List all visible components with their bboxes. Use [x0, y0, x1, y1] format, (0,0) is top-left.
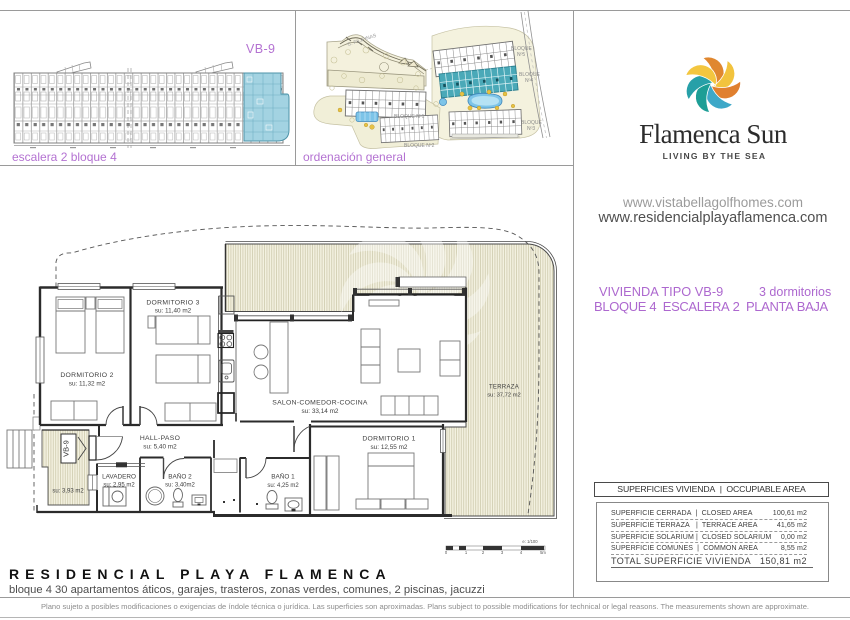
svg-text:su: 4,25 m2: su: 4,25 m2 [267, 483, 299, 489]
svg-text:3: 3 [501, 550, 504, 555]
svg-text:e: 1/100: e: 1/100 [522, 539, 538, 544]
svg-text:su: 37,72 m2: su: 37,72 m2 [487, 393, 521, 399]
svg-text:DORMITORIO 1: DORMITORIO 1 [362, 436, 415, 443]
svg-text:Nº5: Nº5 [517, 52, 525, 58]
svg-text:4: 4 [520, 550, 523, 555]
svg-text:1: 1 [465, 550, 468, 555]
svg-text:TERRAZA: TERRAZA [489, 385, 519, 391]
svg-text:su: 3,40m2: su: 3,40m2 [165, 483, 195, 489]
svg-text:SALON-COMEDOR-COCINA: SALON-COMEDOR-COCINA [272, 400, 368, 407]
svg-text:VB-9: VB-9 [62, 440, 71, 457]
svg-text:su: 11,40 m2: su: 11,40 m2 [155, 308, 192, 315]
svg-text:0: 0 [445, 550, 448, 555]
svg-text:HALL-PASO: HALL-PASO [140, 435, 180, 442]
svg-text:su: 3,93 m2: su: 3,93 m2 [52, 489, 84, 495]
svg-text:DORMITORIO 3: DORMITORIO 3 [146, 300, 199, 307]
svg-text:BAÑO 2: BAÑO 2 [168, 472, 192, 481]
svg-text:Nº4: Nº4 [525, 78, 533, 84]
svg-text:su: 12,55 m2: su: 12,55 m2 [371, 444, 408, 451]
svg-text:BAÑO 1: BAÑO 1 [271, 472, 295, 481]
svg-text:su: 2,95 m2: su: 2,95 m2 [103, 483, 135, 489]
svg-text:BLOQUE Nº2: BLOQUE Nº2 [404, 143, 435, 149]
svg-text:Nº3: Nº3 [527, 126, 535, 132]
svg-text:BLOQUE Nº1: BLOQUE Nº1 [394, 114, 425, 120]
svg-text:su: 33,14 m2: su: 33,14 m2 [302, 408, 339, 415]
svg-text:su: 11,32 m2: su: 11,32 m2 [69, 381, 106, 388]
svg-text:2: 2 [482, 550, 485, 555]
svg-text:5m: 5m [540, 550, 546, 555]
svg-text:DORMITORIO 2: DORMITORIO 2 [60, 372, 113, 379]
svg-text:LAVADERO: LAVADERO [102, 474, 136, 481]
svg-text:su: 5,40 m2: su: 5,40 m2 [143, 444, 177, 451]
